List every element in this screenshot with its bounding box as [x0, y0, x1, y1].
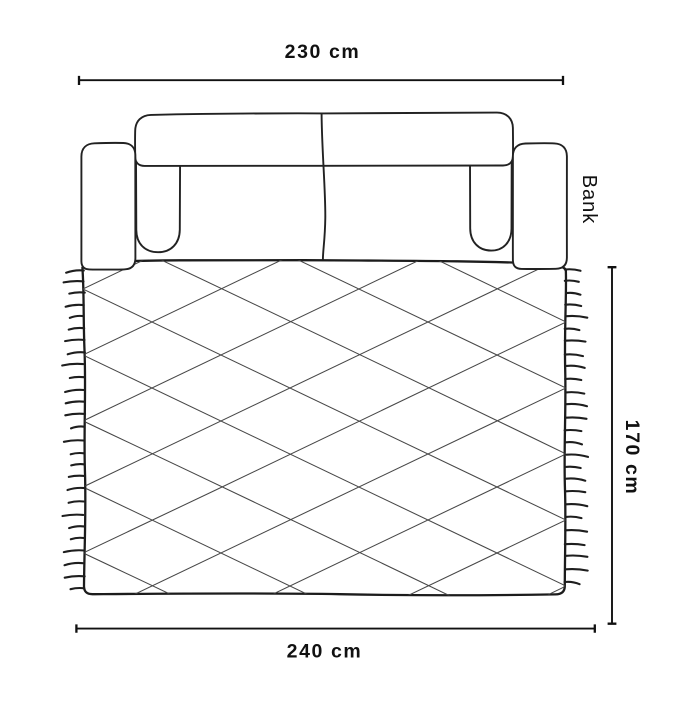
svg-text:240 cm: 240 cm	[287, 641, 363, 663]
svg-text:170 cm: 170 cm	[621, 420, 643, 496]
svg-text:Bank: Bank	[578, 175, 600, 225]
svg-text:230 cm: 230 cm	[285, 41, 361, 63]
